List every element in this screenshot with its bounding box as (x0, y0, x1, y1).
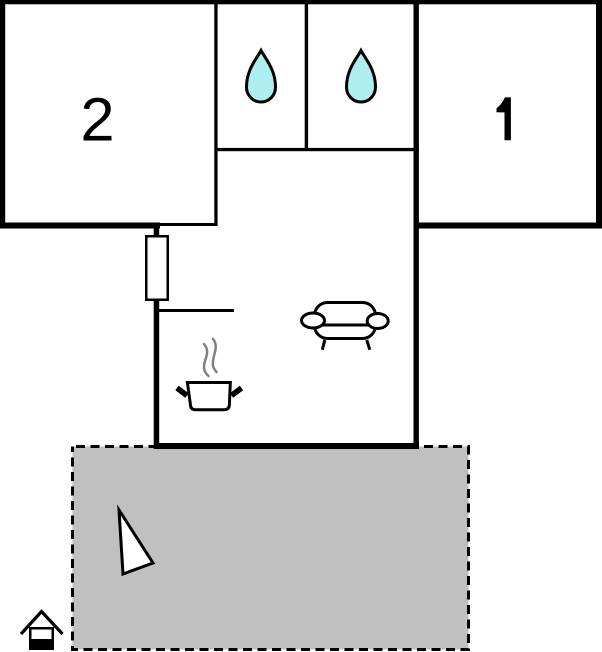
svg-text:2: 2 (80, 86, 114, 155)
